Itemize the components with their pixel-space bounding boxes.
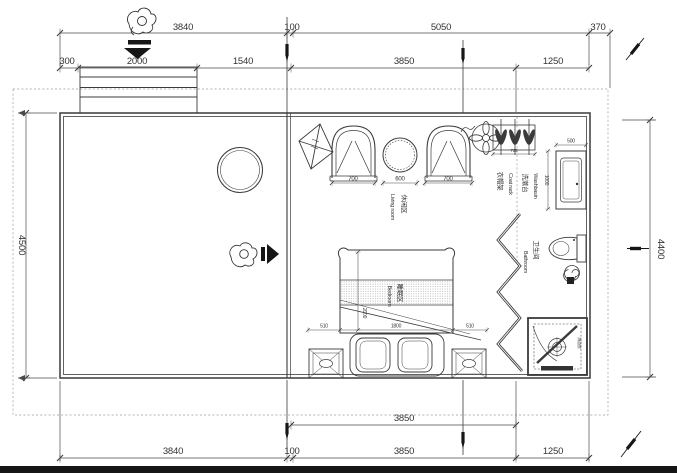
dim-510-left: 510 (320, 324, 328, 330)
dim-370-top: 370 (590, 22, 605, 33)
bedroom-label-en: Bedroom (386, 286, 392, 308)
shower-threshold (541, 366, 573, 371)
dim-3840-top: 3840 (173, 22, 193, 33)
shower-label: 淋浴房 (577, 337, 583, 349)
dim-700-left: 700 (348, 177, 358, 183)
dim-600: 600 (395, 177, 405, 183)
dim-4500-left: 4500 (16, 235, 27, 255)
dim-700-right: 700 (443, 177, 453, 183)
bathroom-black-square (567, 277, 574, 284)
dim-1250-top: 1250 (543, 56, 563, 67)
dim-3850-bottom1: 3850 (394, 413, 414, 424)
washbasin-label-en: Washbasin (532, 173, 538, 198)
floor-plan-svg: 3840 100 5050 370 300 2000 1540 3850 125… (0, 0, 677, 473)
dim-510-right: 510 (466, 324, 474, 330)
dim-5050-top: 5050 (431, 22, 451, 33)
living-room-label-en: Living room (389, 194, 395, 221)
coat-rack-label-en: Coat rack (507, 173, 513, 195)
bedroom-label-cn: 睡眠区 (396, 284, 404, 304)
canvas-background (0, 0, 677, 473)
dim-300: 300 (59, 56, 74, 67)
coat-rack-label-cn: 衣帽架 (496, 172, 505, 192)
dim-1800: 1800 (391, 324, 402, 330)
bottom-edge-bar (0, 466, 677, 473)
dim-500: 500 (567, 139, 575, 145)
bathroom-label-en: Bathroom (522, 251, 528, 274)
dim-2000-bed: 2000 (361, 308, 367, 319)
dim-1250-bottom: 1250 (543, 446, 563, 457)
living-room-label-cn: 休闲区 (400, 195, 409, 215)
bathroom-label-cn: 卫生间 (532, 241, 541, 260)
dim-4400-right: 4400 (655, 239, 666, 259)
dim-3850-top: 3850 (394, 56, 414, 67)
dim-1000: 1000 (543, 175, 549, 186)
washbasin-label-cn: 洗漱台 (521, 174, 530, 193)
dim-725: 725 (511, 148, 519, 153)
floor-plan-canvas: 3840 100 5050 370 300 2000 1540 3850 125… (0, 0, 677, 473)
dim-3850-bottom2: 3850 (394, 446, 414, 457)
dim-3840-bottom: 3840 (163, 446, 183, 457)
dim-1540: 1540 (233, 56, 253, 67)
